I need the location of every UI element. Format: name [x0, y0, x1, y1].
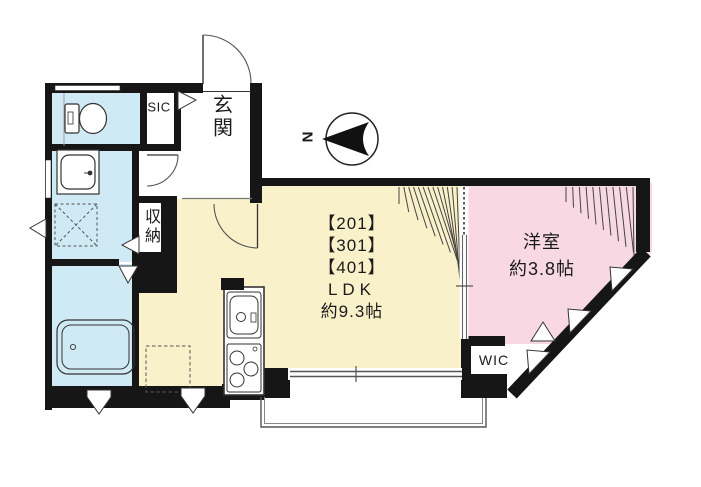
washbasin-fixture — [57, 150, 99, 194]
kitchen-wall-stub — [221, 278, 244, 290]
label-entrance: 玄関 — [207, 94, 236, 140]
label-sic: SIC — [147, 100, 170, 115]
label-ldk-name: LDK — [318, 279, 385, 301]
ldk-balcony-window-gap — [288, 368, 462, 380]
front-door — [203, 35, 251, 92]
floor-plan: SIC 玄関 収納 【201】 【301】 【401】 LDK 約9.3帖 洋室… — [0, 0, 701, 487]
label-ldk-size: 約9.3帖 — [318, 301, 385, 323]
label-storage: 収納 — [138, 208, 162, 246]
partition-gap — [460, 187, 469, 339]
bottom-window-marker — [181, 388, 205, 413]
label-bedroom-block: 洋室 約3.8帖 — [509, 229, 575, 283]
label-unit-401: 【401】 — [318, 257, 385, 279]
label-north: N — [300, 132, 317, 143]
label-bedroom-size: 約3.8帖 — [509, 256, 575, 283]
label-wic: WIC — [479, 352, 509, 368]
compass — [322, 113, 378, 165]
toilet-window — [55, 86, 120, 91]
toilet-fixture — [65, 104, 107, 134]
balcony — [261, 397, 486, 427]
sic-door-marker — [178, 91, 196, 110]
label-unit-301: 【301】 — [318, 235, 385, 257]
kitchen-counter — [224, 287, 264, 395]
bath-window-marker — [87, 390, 111, 414]
label-ldk-block: 【201】 【301】 【401】 LDK 約9.3帖 — [318, 213, 385, 323]
label-bedroom-name: 洋室 — [509, 229, 575, 256]
label-unit-201: 【201】 — [318, 213, 385, 235]
hall-door — [147, 155, 178, 186]
left-wall-window-marker — [30, 219, 46, 238]
washroom-side-window — [46, 160, 52, 198]
